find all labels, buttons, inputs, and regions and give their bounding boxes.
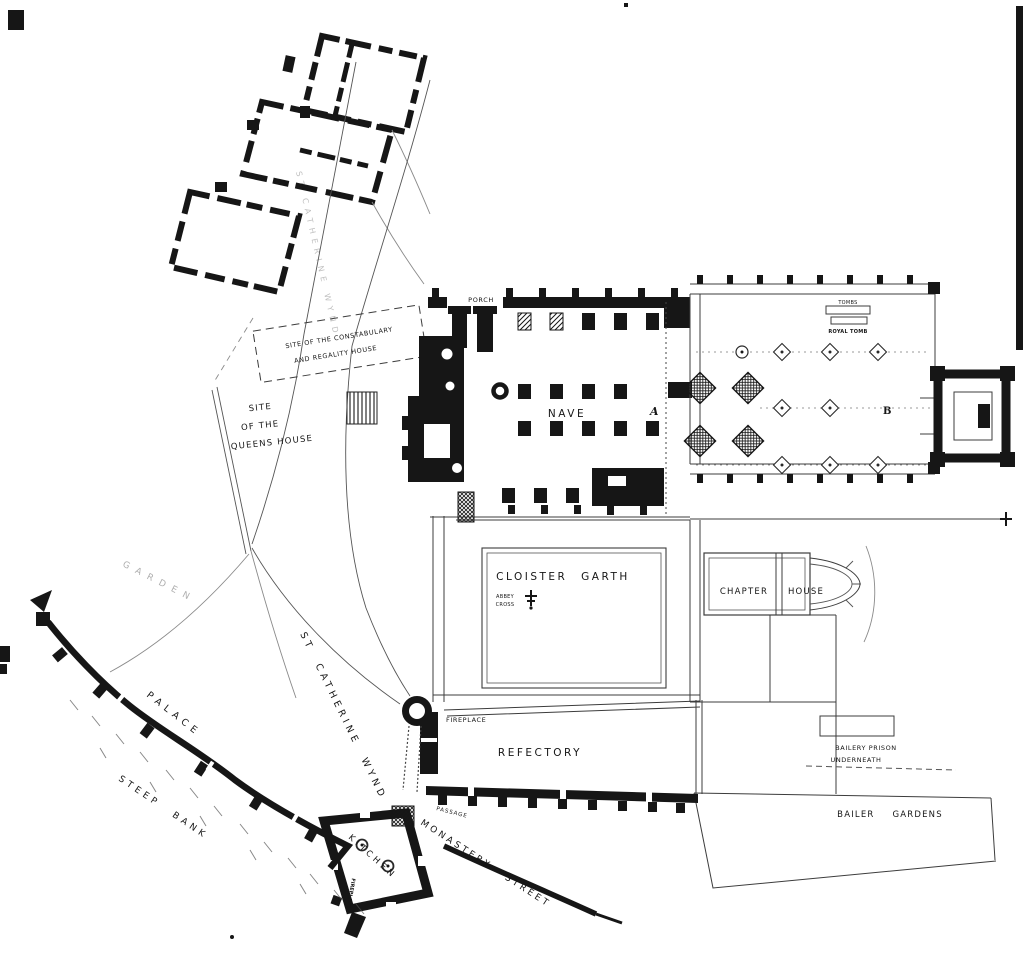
label-constabulary-2: AND REGALITY HOUSE bbox=[294, 344, 378, 365]
bailery-area: BAILERY PRISON UNDERNEATH BAILER GARDENS bbox=[690, 615, 996, 888]
label-passage: PASSAGE bbox=[436, 806, 469, 820]
plan-drawing: ST CATHERINE WYND SITE OF THE CONSTABULA… bbox=[0, 0, 1026, 960]
queens-house-site: SITE OF THE QUEENS HOUSE bbox=[227, 398, 314, 452]
cloister: CLOISTER GARTH ABBEY CROSS bbox=[433, 516, 700, 702]
choir-buttresses bbox=[697, 275, 940, 483]
palace-north-turret bbox=[30, 590, 52, 612]
royal-tombs: TOMBS ROYAL TOMB bbox=[826, 300, 870, 335]
label-tombs: TOMBS bbox=[837, 300, 857, 306]
label-st-catherine-wynd: ST CATHERINE WYND bbox=[297, 630, 388, 801]
steps-hatch bbox=[347, 392, 377, 424]
label-queens-3: QUEENS HOUSE bbox=[230, 434, 313, 453]
label-abbey-cross-1: ABBEY bbox=[496, 594, 515, 600]
steep-bank-hatching bbox=[70, 700, 364, 914]
label-refectory: REFECTORY bbox=[498, 747, 582, 759]
palace: PALACE STEEP BANK GARDEN bbox=[30, 560, 364, 914]
label-queens-1: SITE bbox=[248, 402, 272, 414]
label-queens-2: OF THE bbox=[241, 419, 280, 433]
label-palace: PALACE bbox=[144, 690, 203, 739]
label-kitchen: KITCHEN bbox=[346, 833, 398, 881]
label-porch: PORCH bbox=[468, 296, 494, 304]
church-choir: B TOMBS ROYAL TOMB bbox=[684, 275, 1015, 526]
label-bailery-prison-2: UNDERNEATH bbox=[830, 756, 881, 764]
constabulary-site: SITE OF THE CONSTABULARY AND REGALITY HO… bbox=[253, 305, 427, 383]
label-cloister-garth: CLOISTER GARTH bbox=[496, 571, 630, 583]
label-royal-tomb: ROYAL TOMB bbox=[828, 329, 867, 335]
pend-hatch bbox=[392, 806, 414, 826]
label-bailer-gardens: BAILER GARDENS bbox=[837, 810, 943, 820]
chapter-house: CHAPTER HOUSE bbox=[704, 546, 875, 642]
monastery-street: MONASTERY STREET bbox=[418, 818, 622, 923]
label-chapter: CHAPTER bbox=[720, 587, 768, 597]
label-nave: NAVE bbox=[548, 408, 586, 420]
label-steep-bank: STEEP BANK bbox=[116, 774, 209, 841]
ruined-buildings bbox=[171, 36, 430, 292]
label-monastery-street: MONASTERY STREET bbox=[418, 818, 552, 910]
label-abbey-cross-2: CROSS bbox=[496, 602, 515, 608]
label-bailery-prison-1: BAILERY PRISON bbox=[835, 744, 897, 752]
church-nave: PORCH NAVE A bbox=[402, 288, 692, 522]
prison-footprint bbox=[820, 716, 894, 736]
abbey-cross: ABBEY CROSS bbox=[496, 590, 537, 610]
label-house: HOUSE bbox=[788, 587, 824, 597]
east-tower bbox=[920, 366, 1015, 467]
cross-icon bbox=[525, 590, 537, 610]
marker-b: B bbox=[883, 406, 891, 417]
marker-a: A bbox=[649, 405, 659, 418]
refectory: FIREPLACE REFECTORY bbox=[420, 700, 702, 813]
abbey-site-plan: ST CATHERINE WYND SITE OF THE CONSTABULA… bbox=[0, 0, 1026, 960]
kitchen: KITCHEN FIREPLACE PASSAGE bbox=[324, 806, 468, 938]
label-fireplace-refectory: FIREPLACE bbox=[446, 716, 486, 724]
label-garden: GARDEN bbox=[121, 560, 197, 606]
